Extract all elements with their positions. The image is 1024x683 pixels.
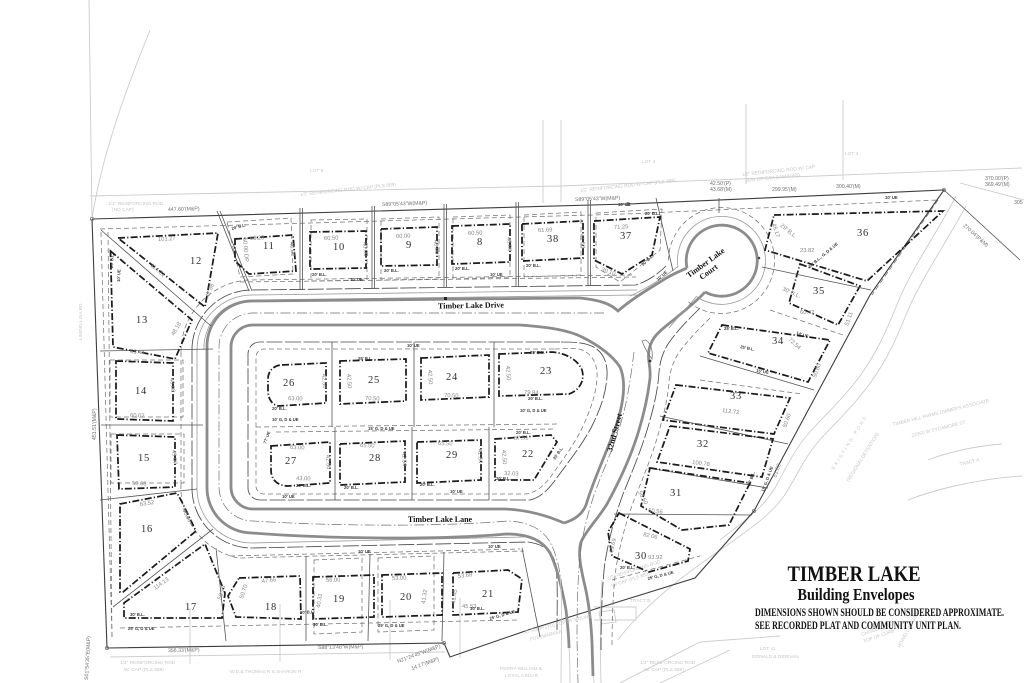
svg-text:356.33'(M&P): 356.33'(M&P): [168, 647, 200, 654]
svg-text:30' B.L.: 30' B.L.: [130, 612, 145, 617]
svg-text:63.00: 63.00: [290, 445, 305, 452]
svg-text:W/ CAP (PLS 889): W/ CAP (PLS 889): [124, 667, 164, 673]
svg-text:PERRY-WILLIAM &: PERRY-WILLIAM &: [500, 666, 543, 672]
svg-text:43.00: 43.00: [296, 476, 311, 483]
svg-text:10' UE: 10' UE: [488, 544, 501, 549]
svg-text:LOYAL CEDAR: LOYAL CEDAR: [505, 673, 539, 679]
svg-text:20' B.L.: 20' B.L.: [384, 268, 399, 273]
svg-text:25' G, D & UE: 25' G, D & UE: [128, 626, 155, 631]
svg-text:20: 20: [400, 592, 412, 603]
svg-text:20' B.L.: 20' B.L.: [496, 476, 511, 481]
svg-text:10' UE: 10' UE: [885, 195, 898, 200]
svg-text:41.58: 41.58: [578, 234, 585, 249]
svg-text:40.00: 40.00: [505, 237, 512, 252]
svg-text:42.50: 42.50: [500, 450, 507, 465]
svg-text:43.68'(M): 43.68'(M): [710, 187, 732, 193]
svg-text:10: 10: [333, 242, 345, 253]
svg-text:20' B.L.: 20' B.L.: [455, 266, 470, 271]
svg-text:451.51'(M&P): 451.51'(M&P): [92, 408, 98, 440]
svg-text:Building Envelopes: Building Envelopes: [798, 585, 915, 604]
svg-text:S88°13'48"W(M&P): S88°13'48"W(M&P): [318, 644, 364, 651]
svg-text:18: 18: [265, 602, 277, 613]
svg-text:42.50: 42.50: [504, 366, 511, 381]
svg-text:70.50: 70.50: [444, 393, 459, 400]
svg-text:10' UE: 10' UE: [358, 549, 371, 554]
svg-text:53.00: 53.00: [392, 575, 407, 582]
svg-text:60.50: 60.50: [324, 235, 339, 242]
svg-text:21: 21: [482, 589, 494, 600]
svg-text:9: 9: [406, 240, 412, 251]
svg-text:10' UE: 10' UE: [450, 489, 463, 494]
svg-text:25' G, D & UE: 25' G, D & UE: [378, 623, 405, 628]
svg-text:300.40'(M): 300.40'(M): [836, 184, 861, 190]
svg-text:15: 15: [138, 453, 150, 464]
svg-text:19: 19: [333, 594, 345, 605]
svg-text:DONALD & DERIVAN: DONALD & DERIVAN: [752, 654, 799, 660]
svg-text:14: 14: [135, 386, 147, 397]
svg-text:TIMBER LAKE: TIMBER LAKE: [788, 561, 921, 586]
svg-text:Timber Lake Drive: Timber Lake Drive: [438, 300, 505, 310]
svg-text:20' B.L.: 20' B.L.: [312, 272, 327, 277]
svg-text:68.28: 68.28: [250, 235, 265, 242]
svg-text:25: 25: [368, 375, 380, 386]
svg-text:20' B.L.: 20' B.L.: [296, 483, 311, 488]
svg-text:71.25: 71.25: [614, 224, 629, 231]
svg-text:1/2" REINFORCING ROD: 1/2" REINFORCING ROD: [120, 660, 176, 666]
svg-text:20' B.L.: 20' B.L.: [645, 211, 660, 216]
svg-text:10' UE: 10' UE: [618, 202, 631, 207]
svg-text:20' B.L.: 20' B.L.: [344, 485, 359, 490]
svg-text:42.50: 42.50: [426, 370, 433, 385]
svg-text:35: 35: [813, 286, 825, 297]
svg-text:22: 22: [522, 449, 534, 460]
svg-text:60.50: 60.50: [468, 230, 483, 237]
svg-text:42.50: 42.50: [345, 374, 352, 389]
svg-text:299.95'(M): 299.95'(M): [772, 187, 797, 193]
svg-text:1/2" REINFORCING ROD: 1/2" REINFORCING ROD: [108, 201, 164, 207]
svg-text:10' UE: 10' UE: [116, 269, 121, 282]
svg-text:10' UE: 10' UE: [350, 277, 363, 282]
svg-text:DIMENSIONS SHOWN SHOULD BE CON: DIMENSIONS SHOWN SHOULD BE CONSIDERED AP…: [755, 607, 1004, 619]
svg-text:LIMING-LISA RD: LIMING-LISA RD: [78, 303, 84, 340]
svg-text:65.50: 65.50: [438, 441, 453, 448]
svg-text:369.49'(M): 369.49'(M): [985, 182, 1010, 188]
svg-text:305: 305: [1014, 200, 1023, 206]
svg-text:LOT 11: LOT 11: [760, 646, 776, 652]
svg-text:26: 26: [283, 378, 295, 389]
svg-text:42.50: 42.50: [476, 449, 483, 464]
svg-text:24: 24: [446, 372, 458, 383]
svg-text:11: 11: [263, 241, 275, 252]
svg-text:10' UE: 10' UE: [282, 494, 295, 499]
svg-text:37: 37: [620, 231, 632, 242]
svg-text:93.92: 93.92: [648, 555, 663, 561]
svg-text:20' B.L.: 20' B.L.: [272, 406, 287, 411]
svg-text:LOT 3: LOT 3: [845, 151, 859, 157]
svg-text:42.50: 42.50: [324, 455, 331, 470]
svg-text:LOT 9: LOT 9: [310, 168, 324, 174]
svg-text:36: 36: [857, 228, 869, 239]
svg-text:13: 13: [136, 315, 148, 326]
svg-text:TRACT B: TRACT B: [630, 598, 650, 604]
svg-text:61.69: 61.69: [538, 227, 553, 234]
svg-text:32: 32: [697, 439, 709, 450]
svg-text:447.60'(M&P): 447.60'(M&P): [168, 206, 200, 213]
svg-text:30' B.L.: 30' B.L.: [470, 606, 485, 611]
svg-text:50.68: 50.68: [132, 481, 147, 488]
svg-text:31: 31: [670, 488, 682, 499]
svg-text:101.27: 101.27: [158, 236, 176, 243]
svg-text:38: 38: [547, 234, 559, 245]
svg-text:1/2" REINFORCING ROD: 1/2" REINFORCING ROD: [640, 660, 696, 666]
svg-text:40.00: 40.00: [361, 242, 368, 257]
svg-text:20' B.L.: 20' B.L.: [620, 565, 635, 570]
svg-text:8: 8: [477, 237, 483, 248]
svg-text:Timber Lake Lane: Timber Lake Lane: [408, 515, 473, 524]
svg-text:40.00: 40.00: [432, 240, 439, 255]
svg-text:60.00: 60.00: [396, 233, 411, 240]
svg-text:28: 28: [369, 453, 381, 464]
svg-text:20' B.L.: 20' B.L.: [516, 430, 531, 435]
svg-text:42.50: 42.50: [400, 452, 407, 467]
svg-text:29: 29: [446, 450, 458, 461]
svg-text:70.50: 70.50: [365, 396, 380, 403]
svg-text:10' G, D & UE: 10' G, D & UE: [272, 417, 299, 422]
svg-text:23: 23: [540, 366, 552, 377]
svg-text:W.D.&.THOMAS R & SHARON R: W.D.&.THOMAS R & SHARON R: [230, 669, 302, 675]
svg-text:16: 16: [141, 524, 153, 535]
svg-text:60.02: 60.02: [130, 413, 145, 420]
svg-text:60.42: 60.42: [800, 310, 815, 316]
svg-text:17: 17: [185, 602, 197, 613]
svg-text:10' UE: 10' UE: [407, 343, 420, 348]
svg-text:67.51: 67.51: [514, 435, 529, 442]
svg-text:10' G, D & UE: 10' G, D & UE: [520, 408, 547, 413]
svg-text:(NO CAP): (NO CAP): [112, 207, 134, 213]
svg-text:42.50: 42.50: [320, 374, 327, 389]
svg-text:20' B.L.: 20' B.L.: [528, 396, 543, 401]
svg-text:34: 34: [772, 336, 784, 347]
svg-text:30: 30: [635, 551, 647, 562]
svg-text:SEE RECORDED PLAT AND COMMUNIT: SEE RECORDED PLAT AND COMMUNITY UNIT PLA…: [755, 620, 961, 632]
svg-text:63.00: 63.00: [288, 396, 303, 403]
svg-text:27: 27: [285, 456, 297, 467]
svg-text:30' B.L.: 30' B.L.: [313, 622, 328, 627]
svg-text:20' B.L.: 20' B.L.: [526, 263, 541, 268]
svg-text:12: 12: [190, 256, 202, 267]
svg-text:LOT 4: LOT 4: [642, 159, 656, 165]
svg-text:40.00: 40.00: [288, 242, 295, 257]
svg-text:23.82: 23.82: [800, 248, 815, 254]
svg-text:15' G, D & UE: 15' G, D & UE: [368, 426, 395, 431]
svg-text:56.00: 56.00: [326, 577, 341, 584]
svg-text:65.50: 65.50: [360, 443, 375, 450]
svg-text:10' UE: 10' UE: [490, 272, 503, 277]
svg-text:33: 33: [730, 391, 742, 402]
